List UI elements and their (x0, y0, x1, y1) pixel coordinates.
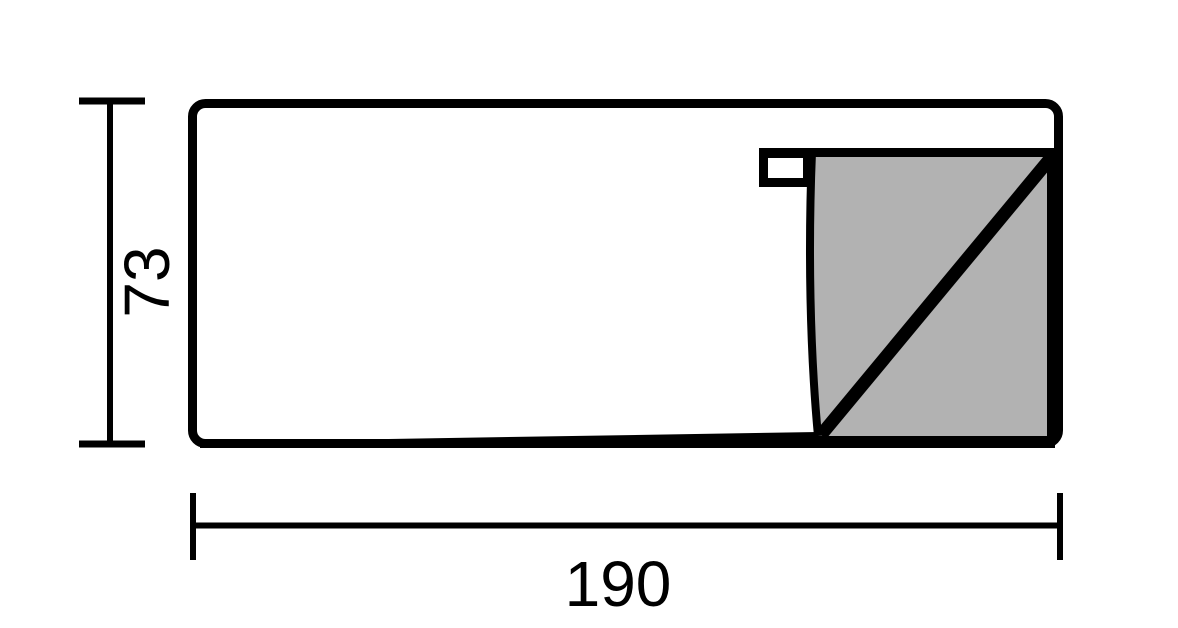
notch-rect (764, 154, 808, 183)
drawing-canvas: 73 190 (0, 0, 1178, 628)
width-dimension-label: 190 (565, 548, 672, 620)
profile-cross-section-drawing: 73 190 (0, 0, 1178, 628)
height-dimension: 73 (79, 101, 183, 444)
height-dimension-label: 73 (111, 246, 183, 317)
width-dimension: 190 (193, 493, 1060, 620)
